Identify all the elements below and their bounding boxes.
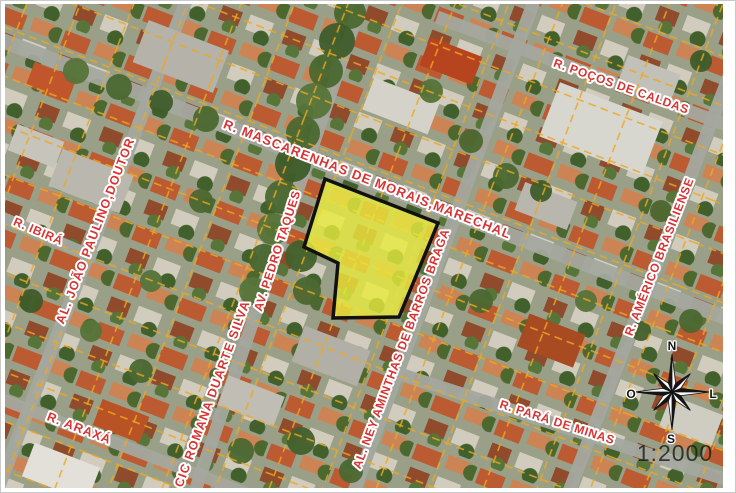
map-document-page: R. POÇOS DE CALDAS R. MASCARENHAS DE MOR… [0,0,736,493]
aerial-map-image: R. POÇOS DE CALDAS R. MASCARENHAS DE MOR… [1,1,736,493]
compass-west-label: O [626,387,635,401]
compass-north-label: N [668,339,677,353]
map-scale-label: 1:2000 [637,440,713,466]
compass-east-label: L [709,387,716,401]
